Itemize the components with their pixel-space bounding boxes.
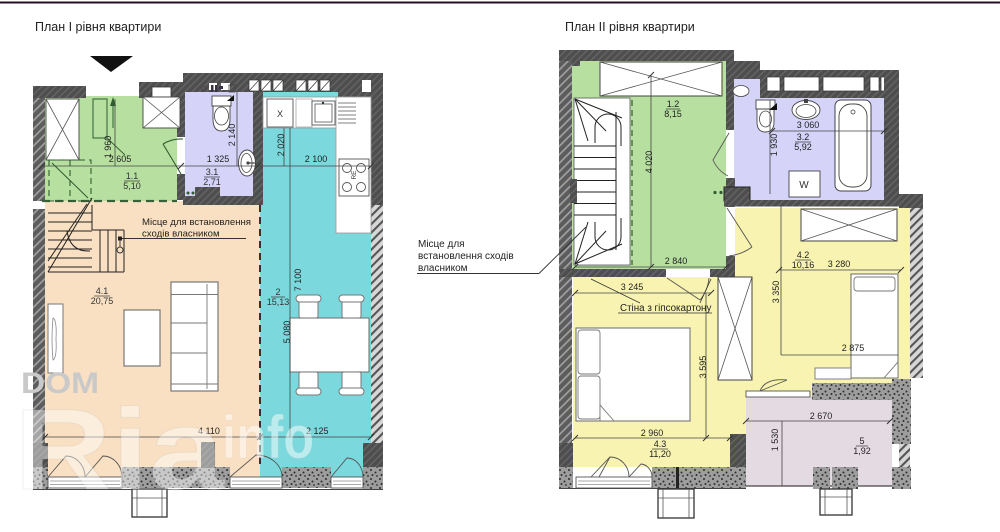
svg-text:2 840: 2 840 — [665, 256, 688, 266]
svg-text:1 325: 1 325 — [207, 154, 230, 164]
svg-text:4 020: 4 020 — [644, 151, 654, 174]
svg-text:План II рівня квартири: План II рівня квартири — [565, 20, 695, 34]
svg-text:5,92: 5,92 — [794, 142, 812, 152]
svg-text:5,10: 5,10 — [123, 181, 141, 191]
svg-text:1.2: 1.2 — [667, 99, 680, 109]
svg-text:3 350: 3 350 — [771, 281, 781, 304]
svg-text:Ria: Ria — [14, 386, 225, 514]
svg-text:5: 5 — [859, 436, 864, 446]
svg-text:Місце для: Місце для — [418, 239, 465, 250]
svg-text:2 020: 2 020 — [276, 134, 286, 157]
svg-text:20,75: 20,75 — [91, 296, 114, 306]
svg-text:2 140: 2 140 — [227, 124, 237, 147]
svg-text:8,15: 8,15 — [664, 109, 682, 119]
svg-text:4.3: 4.3 — [654, 439, 667, 449]
svg-text:15,13: 15,13 — [267, 297, 290, 307]
svg-text:3 595: 3 595 — [698, 356, 708, 379]
svg-text:3.1: 3.1 — [206, 167, 219, 177]
svg-text:4.1: 4.1 — [96, 286, 109, 296]
svg-text:info: info — [222, 404, 314, 471]
svg-text:1 960: 1 960 — [103, 136, 113, 159]
svg-text:2 875: 2 875 — [842, 343, 865, 353]
svg-text:3 245: 3 245 — [621, 282, 644, 292]
svg-text:1.1: 1.1 — [126, 171, 139, 181]
svg-text:Місце для встановлення: Місце для встановлення — [142, 217, 251, 228]
svg-text:3 060: 3 060 — [797, 120, 820, 130]
svg-text:встановлення сходів: встановлення сходів — [418, 251, 514, 262]
svg-text:1 930: 1 930 — [769, 134, 779, 157]
svg-text:2 670: 2 670 — [810, 411, 833, 421]
svg-text:2 100: 2 100 — [305, 154, 328, 164]
svg-text:10,16: 10,16 — [792, 260, 815, 270]
svg-text:сходів власником: сходів власником — [142, 229, 220, 240]
svg-text:2 960: 2 960 — [641, 428, 664, 438]
svg-text:RE: RE — [351, 170, 358, 180]
svg-text:4.2: 4.2 — [797, 250, 810, 260]
svg-text:7 100: 7 100 — [293, 269, 303, 292]
svg-text:3.2: 3.2 — [797, 132, 810, 142]
svg-text:3 280: 3 280 — [828, 259, 851, 269]
svg-text:W: W — [799, 180, 809, 191]
svg-text:2,71: 2,71 — [203, 177, 221, 187]
svg-text:5 080: 5 080 — [282, 321, 292, 344]
svg-text:2: 2 — [275, 287, 280, 297]
svg-text:власником: власником — [418, 263, 468, 274]
svg-text:1 530: 1 530 — [770, 429, 780, 452]
svg-text:1,92: 1,92 — [853, 446, 871, 456]
svg-text:План I рівня квартири: План I рівня квартири — [35, 20, 161, 34]
svg-text:Стіна з гіпсокартону: Стіна з гіпсокартону — [620, 303, 711, 314]
svg-text:11,20: 11,20 — [649, 449, 671, 459]
svg-text:X: X — [277, 109, 283, 119]
